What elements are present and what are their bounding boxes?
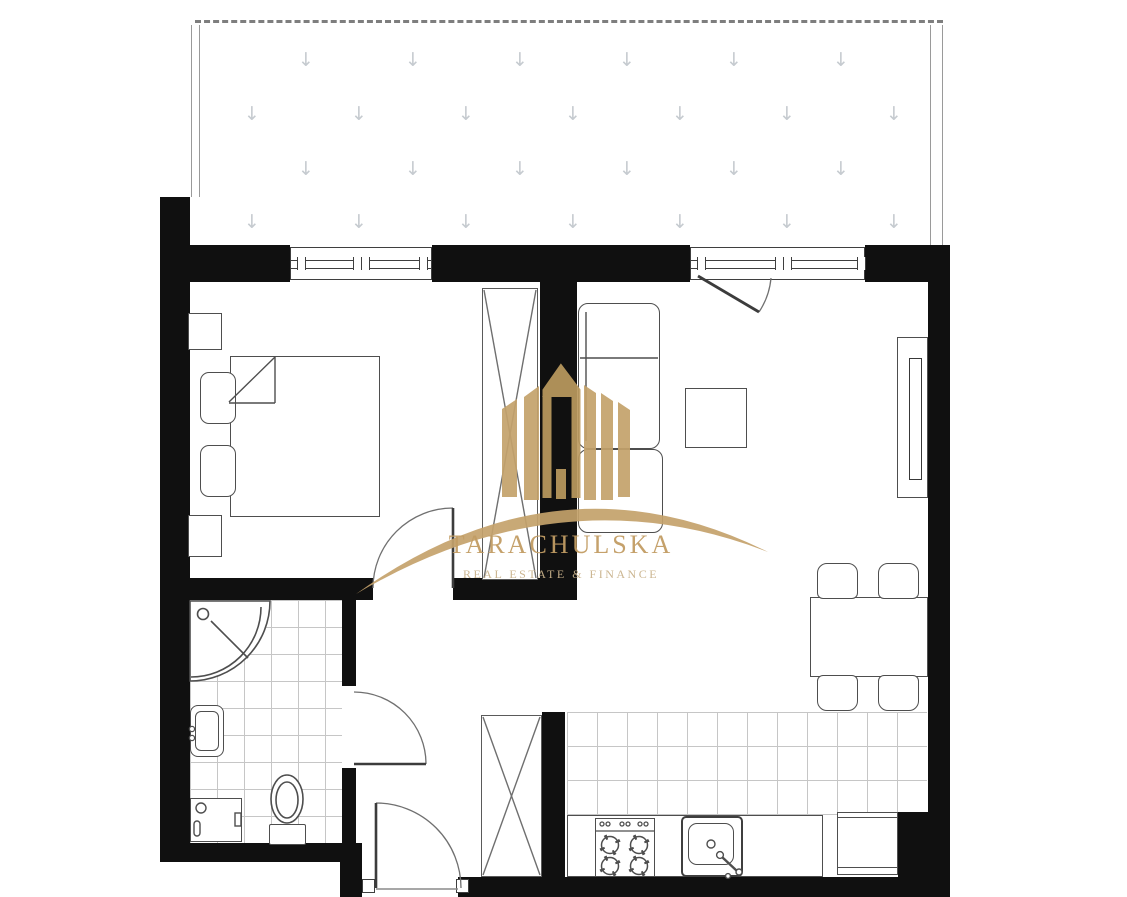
kitchen-floor-tiles [567,712,927,815]
window-mullion [783,257,792,270]
balcony-arrow-icon: ↓ [405,49,421,71]
balcony-edge-right [930,25,943,245]
balcony-arrow-icon: ↓ [672,211,688,233]
balcony-edge-left [191,25,200,197]
balcony-arrow-icon: ↓ [619,158,635,180]
hallway-wardrobe [481,715,542,877]
wall-top-a [160,245,290,282]
window-mullion [297,257,306,270]
sofa-chaise [578,449,663,533]
balcony-arrow-icon: ↓ [351,103,367,125]
balcony-arrow-icon: ↓ [886,103,902,125]
balcony-arrow-icon: ↓ [512,158,528,180]
wall-bottom [458,877,950,897]
balcony-arrow-icon: ↓ [458,103,474,125]
kitchen-sink-basin [688,823,734,865]
balcony-arrow-icon: ↓ [619,49,635,71]
dining-chair [878,563,919,599]
entry-door-jamb [456,879,469,893]
dining-chair [817,563,858,599]
wall-hall-kitchen [542,712,565,879]
balcony-arrow-icon: ↓ [726,49,742,71]
balcony-door [698,276,771,312]
balcony-arrow-icon: ↓ [672,103,688,125]
tv-panel [909,358,922,480]
window-mullion [419,257,428,270]
balcony-arrow-icon: ↓ [779,103,795,125]
nightstand [188,313,222,350]
balcony-arrow-icon: ↓ [405,158,421,180]
balcony-arrow-icon: ↓ [298,158,314,180]
toilet-tank [269,824,306,845]
wall-entry-corner [340,843,362,897]
entry-door-jamb [362,879,375,893]
entrance-door [376,803,461,889]
dining-table [810,597,928,677]
balcony-arrow-icon: ↓ [244,211,260,233]
balcony-arrow-icon: ↓ [833,158,849,180]
fridge [837,812,898,875]
balcony-arrow-icon: ↓ [779,211,795,233]
fridge-line [838,867,897,868]
balcony-arrow-icon: ↓ [512,49,528,71]
nightstand [188,515,222,557]
balcony-arrow-icon: ↓ [458,211,474,233]
pillow [200,372,236,424]
living-room-window [690,247,865,280]
window-mullion [361,257,370,270]
dining-chair [817,675,858,711]
window-mullion [857,257,866,270]
bathroom-door [354,692,426,764]
bedroom-window [290,247,432,280]
balcony-arrow-icon: ↓ [565,211,581,233]
balcony-arrow-icon: ↓ [244,103,260,125]
pillow [200,445,236,497]
coffee-table [685,388,747,448]
balcony: ↓↓↓↓↓↓↓↓↓↓↓↓↓↓↓↓↓↓↓↓↓↓↓↓↓↓ [195,20,943,245]
watermark-tagline-text: REAL ESTATE & FINANCE [411,567,711,582]
dining-chair [878,675,919,711]
balcony-arrow-icon: ↓ [565,103,581,125]
wall-fridge-nook [898,812,950,897]
wall-bathroom-right-bottom [342,768,356,843]
wall-bedroom-bottom-left [185,578,373,600]
balcony-arrow-icon: ↓ [298,49,314,71]
floor-plan: ↓↓↓↓↓↓↓↓↓↓↓↓↓↓↓↓↓↓↓↓↓↓↓↓↓↓ [0,0,1127,897]
washing-machine [190,798,242,842]
wall-top-b [432,245,690,282]
wall-left [160,197,190,862]
balcony-arrow-icon: ↓ [833,49,849,71]
window-mullion [697,257,706,270]
stove [595,818,655,877]
washbasin-inner [195,711,219,751]
double-bed [230,356,380,517]
sofa-body [578,303,660,449]
balcony-arrow-icon: ↓ [351,211,367,233]
watermark-brand-text: TARACHULSKA [381,530,741,560]
balcony-arrow-icon: ↓ [886,211,902,233]
balcony-arrow-icon: ↓ [726,158,742,180]
wall-right [928,245,950,897]
wall-bathroom-right-top [342,600,356,686]
wall-bathroom-bottom [160,843,360,862]
fridge-line [838,817,897,818]
